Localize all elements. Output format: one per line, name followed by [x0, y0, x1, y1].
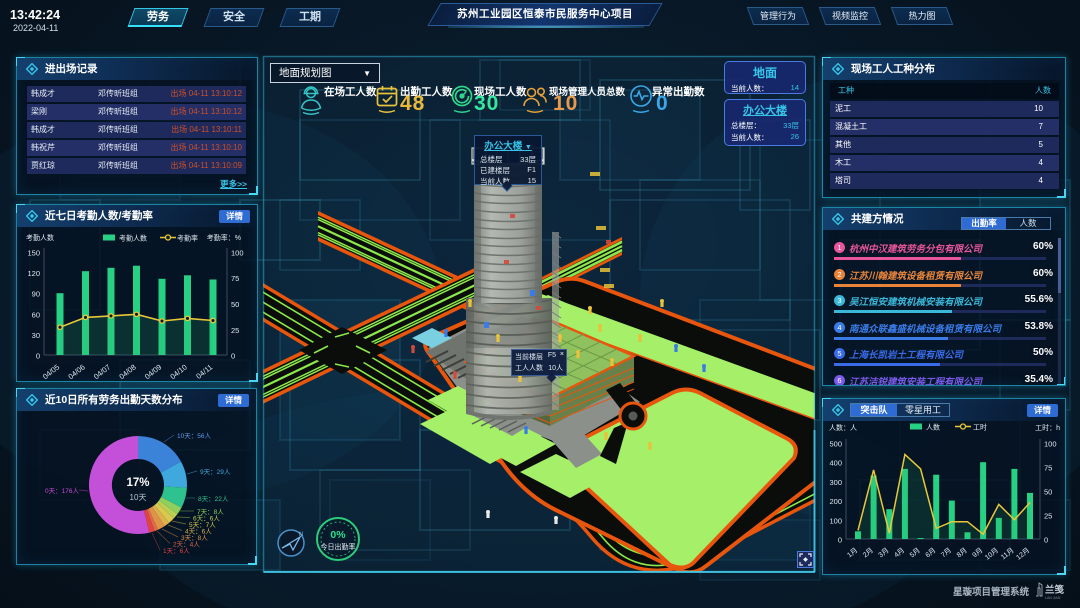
svg-text:2月: 2月: [861, 546, 875, 559]
svg-text:60: 60: [32, 310, 40, 319]
svg-text:30: 30: [32, 331, 40, 340]
svg-text:N: N: [299, 532, 303, 538]
svg-text:4月: 4月: [893, 546, 907, 559]
svg-text:17%: 17%: [126, 477, 149, 489]
svg-text:50: 50: [231, 300, 239, 309]
svg-text:0天：176人: 0天：176人: [45, 487, 79, 495]
svg-text:工时: 工时: [973, 423, 987, 432]
svg-text:9天：29人: 9天：29人: [200, 468, 231, 476]
svg-text:12月: 12月: [1015, 546, 1032, 561]
svg-text:兰笺: 兰笺: [1045, 584, 1065, 596]
svg-text:10月: 10月: [983, 546, 1000, 561]
svg-text:8月: 8月: [955, 546, 969, 559]
svg-text:25: 25: [1044, 512, 1052, 521]
svg-text:200: 200: [829, 497, 842, 506]
svg-text:25: 25: [231, 326, 239, 335]
svg-text:11月: 11月: [999, 546, 1015, 561]
svg-text:人数：人: 人数：人: [829, 423, 857, 432]
svg-text:50: 50: [1044, 488, 1052, 497]
svg-text:3月: 3月: [877, 546, 891, 559]
svg-text:8天：22人: 8天：22人: [198, 495, 229, 503]
svg-text:04/09: 04/09: [143, 362, 163, 381]
svg-text:0%: 0%: [330, 529, 346, 541]
svg-text:500: 500: [829, 440, 842, 449]
svg-text:400: 400: [829, 459, 842, 468]
svg-text:04/08: 04/08: [117, 362, 137, 381]
svg-text:10天: 10天: [130, 493, 147, 502]
svg-text:75: 75: [1044, 464, 1052, 473]
svg-text:考勤人数: 考勤人数: [119, 234, 147, 243]
svg-text:0: 0: [36, 352, 40, 361]
svg-text:120: 120: [27, 269, 40, 278]
svg-text:10天：56人: 10天：56人: [177, 432, 211, 440]
svg-text:04/10: 04/10: [168, 362, 188, 381]
svg-text:90: 90: [32, 290, 40, 299]
svg-text:04/11: 04/11: [194, 362, 214, 380]
svg-text:9月: 9月: [971, 546, 985, 559]
svg-text:0: 0: [1044, 536, 1048, 545]
svg-text:100: 100: [231, 249, 244, 258]
svg-text:工时：h: 工时：h: [1035, 423, 1060, 432]
svg-text:考勤率: 考勤率: [177, 234, 198, 243]
svg-text:100: 100: [829, 516, 842, 525]
svg-text:考勤人数: 考勤人数: [26, 233, 54, 242]
svg-text:人数: 人数: [926, 423, 940, 432]
svg-text:04/06: 04/06: [66, 362, 86, 381]
svg-text:考勤率：%: 考勤率：%: [207, 233, 241, 242]
svg-text:6月: 6月: [924, 546, 938, 559]
svg-text:300: 300: [829, 478, 842, 487]
svg-text:75: 75: [231, 274, 239, 283]
svg-text:150: 150: [27, 249, 40, 258]
svg-text:1天：6人: 1天：6人: [163, 547, 190, 555]
svg-text:04/05: 04/05: [41, 362, 61, 381]
svg-text:5月: 5月: [908, 546, 922, 559]
svg-text:7月: 7月: [940, 546, 954, 559]
svg-text:0: 0: [838, 536, 842, 545]
svg-text:1月: 1月: [846, 546, 860, 559]
svg-text:04/07: 04/07: [92, 362, 112, 381]
svg-text:0: 0: [231, 352, 235, 361]
svg-text:LAN JIAN: LAN JIAN: [1045, 596, 1061, 600]
svg-text:100: 100: [1044, 440, 1057, 449]
svg-text:今日出勤率: 今日出勤率: [321, 542, 356, 551]
